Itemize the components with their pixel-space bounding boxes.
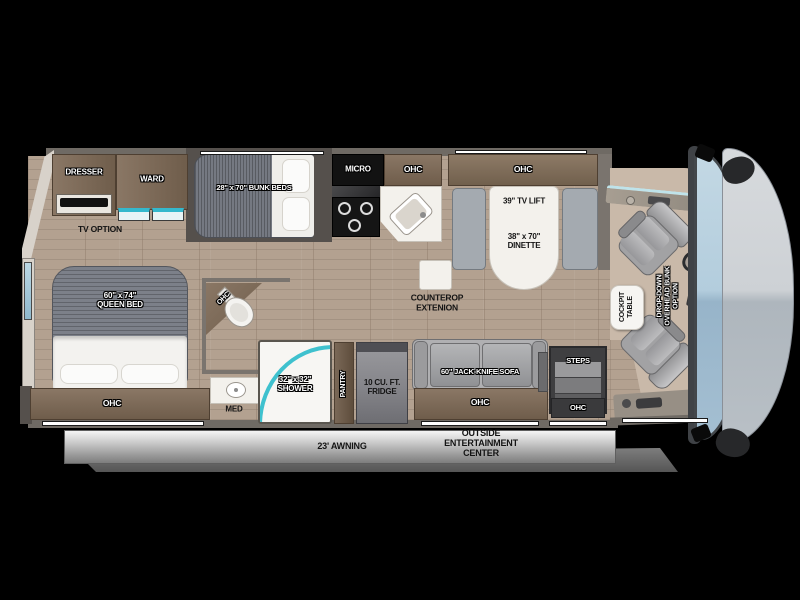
awning-label: 23' AWNING xyxy=(317,441,366,451)
sofa-arm-left xyxy=(414,341,428,389)
med-label: MED xyxy=(225,406,242,415)
bedroom-window xyxy=(24,262,32,320)
ward-glass-door-left xyxy=(118,208,150,221)
steps-label: STEPS xyxy=(566,357,590,365)
overhead-bunk-option-label: DROP-DOWN OVERHEAD BUNK OPTION xyxy=(656,266,679,325)
bed-ohc-label: OHC xyxy=(103,399,121,409)
burner-2 xyxy=(360,202,373,215)
med-sink-drain xyxy=(234,388,238,392)
micro-label: MICRO xyxy=(345,166,371,175)
sofa-cushion-left xyxy=(430,343,480,387)
countertop-extension-label: COUNTEROP EXTENION xyxy=(411,293,464,312)
queen-bed-label: 60" x 74" QUEEN BED xyxy=(97,292,143,310)
sofa-ohc-label: OHC xyxy=(471,398,489,408)
sofa-label: 60" JACK-KNIFE SOFA xyxy=(441,368,519,376)
countertop-extension xyxy=(419,260,452,290)
shower-label: 32" x 32" SHOWER xyxy=(278,376,313,394)
bunk-pillow-bottom xyxy=(282,197,310,231)
cockpit-table-label: COCKPIT TABLE xyxy=(619,292,635,322)
fridge-label: 10 CU. FT. FRIDGE xyxy=(364,379,400,397)
kitchen-ohc-label: OHC xyxy=(404,165,422,175)
tv xyxy=(60,198,108,207)
kitchen-faucet xyxy=(420,212,426,218)
steps-ohc-label: OHC xyxy=(570,404,586,412)
rear-dash-radio xyxy=(636,397,663,409)
queen-pillow-right xyxy=(121,364,179,384)
slide-indicator-cab xyxy=(622,418,708,423)
slide-indicator-dinette xyxy=(455,150,587,154)
ward-label: WARD xyxy=(140,176,164,185)
bath-wall-top xyxy=(202,278,290,282)
bath-wall-bottom xyxy=(202,370,264,374)
front-cap-body xyxy=(722,148,794,444)
bunk-beds-label: 28" x 70" BUNK BEDS xyxy=(216,184,291,192)
queen-pillow-left xyxy=(60,364,118,384)
slide-indicator-sofa xyxy=(421,421,539,426)
tv-lift-label: 39" TV LIFT xyxy=(503,198,545,207)
bath-wall-left xyxy=(202,278,206,374)
fridge-top-band xyxy=(357,343,407,352)
outside-entertainment-label: OUTSIDE ENTERTAINMENT CENTER xyxy=(444,428,518,458)
pantry-label: PANTRY xyxy=(340,371,348,398)
burner-1 xyxy=(338,202,351,215)
slide-indicator-bunk xyxy=(200,151,324,155)
entry-side-panel xyxy=(538,352,548,392)
slide-indicator-steps xyxy=(549,421,607,426)
step-2 xyxy=(555,378,601,393)
dresser-label: DRESSER xyxy=(65,169,102,178)
ward-glass-door-right xyxy=(152,208,184,221)
range-hood xyxy=(332,186,384,197)
dinette-bench-left xyxy=(452,188,486,270)
dash-gauge xyxy=(626,196,635,205)
dinette-bench-right xyxy=(562,188,598,270)
rv-floorplan: DRESSER WARD 28" x 70" BUNK BEDS TV OPTI… xyxy=(0,0,800,600)
dinette-label: 38" x 70" DINETTE xyxy=(508,233,541,251)
slide-indicator-bed xyxy=(42,421,204,426)
sofa-cushion-right xyxy=(482,343,532,387)
tv-option-label: TV OPTION xyxy=(78,225,122,235)
burner-3 xyxy=(348,219,361,232)
dinette-ohc-label: OHC xyxy=(514,165,532,175)
